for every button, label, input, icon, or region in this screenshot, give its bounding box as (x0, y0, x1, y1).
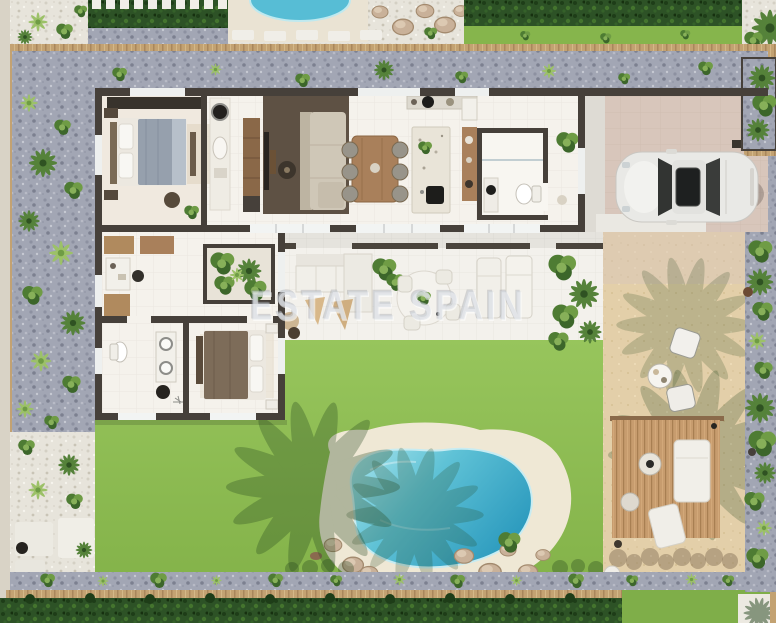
nightstand (266, 400, 278, 409)
bistro-table (648, 364, 672, 388)
parked-car (616, 149, 764, 225)
planter-pot (748, 448, 756, 456)
courtyard-planter (205, 246, 273, 302)
terrace-sliding-door (250, 224, 330, 233)
living-room (263, 96, 349, 214)
cooktop (422, 96, 434, 108)
dining-chair (392, 164, 408, 180)
guest-bathroom (482, 133, 543, 215)
daybed (674, 440, 710, 502)
second-bedroom (196, 324, 278, 409)
front-porch (585, 96, 605, 232)
master-bedroom (102, 96, 212, 225)
bed-bench (196, 336, 203, 384)
washing-machine (212, 104, 228, 120)
pillow (119, 124, 133, 149)
terrace-sliding-door (356, 224, 440, 233)
neighbor-hedge-right (464, 0, 742, 28)
bed-throw (172, 119, 186, 185)
bed-blanket (204, 331, 248, 399)
bottom-border (0, 572, 776, 623)
dining-chair (342, 142, 358, 158)
tall-cabinet (243, 118, 260, 196)
dining-chair (342, 186, 358, 202)
bed-headboard (110, 122, 117, 184)
toilet-tank (110, 344, 118, 360)
bed-bench (190, 132, 196, 176)
nightstand (104, 108, 118, 118)
ottoman (318, 182, 344, 208)
wardrobe (107, 97, 201, 109)
hall-closet (104, 236, 134, 254)
pillow (250, 366, 263, 392)
neighboring-plot (0, 0, 776, 49)
car-sunroof (676, 168, 700, 206)
planter-pot (288, 327, 300, 339)
toilet (516, 184, 532, 204)
car-rear-window (706, 158, 720, 216)
driveway-planter (742, 58, 776, 150)
dining-chair (342, 164, 358, 180)
deck-lamp (711, 423, 717, 429)
desk-chair (132, 270, 144, 282)
washbasin (160, 338, 172, 350)
dining-area (342, 136, 408, 202)
island-sink (426, 186, 444, 204)
car-mirror (666, 149, 677, 154)
washbasin (160, 362, 172, 374)
floor-plan-render: ESTATE SPAIN (0, 0, 776, 623)
stool (156, 385, 170, 399)
laundry-sink (213, 137, 227, 159)
terrace-sliding-door (464, 224, 540, 233)
front-door (578, 148, 585, 194)
right-border-garden (743, 232, 776, 592)
car-windshield (658, 158, 673, 216)
dining-chair (392, 142, 408, 158)
planter-pot (743, 287, 753, 297)
pouf (164, 192, 180, 208)
nightstand (104, 190, 118, 200)
house-shadow-south (95, 420, 287, 425)
dining-chair (392, 186, 408, 202)
deck-side-table (621, 493, 639, 511)
car-mirror (666, 220, 677, 225)
hall-closet (140, 236, 174, 254)
fire-bowl (16, 542, 28, 554)
washbasin (486, 185, 496, 195)
nightstand (266, 324, 278, 333)
tv-unit (264, 132, 269, 190)
toilet-tank (532, 186, 541, 202)
pillow (250, 335, 263, 361)
wooden-deck (610, 416, 724, 549)
pillow (119, 153, 133, 178)
